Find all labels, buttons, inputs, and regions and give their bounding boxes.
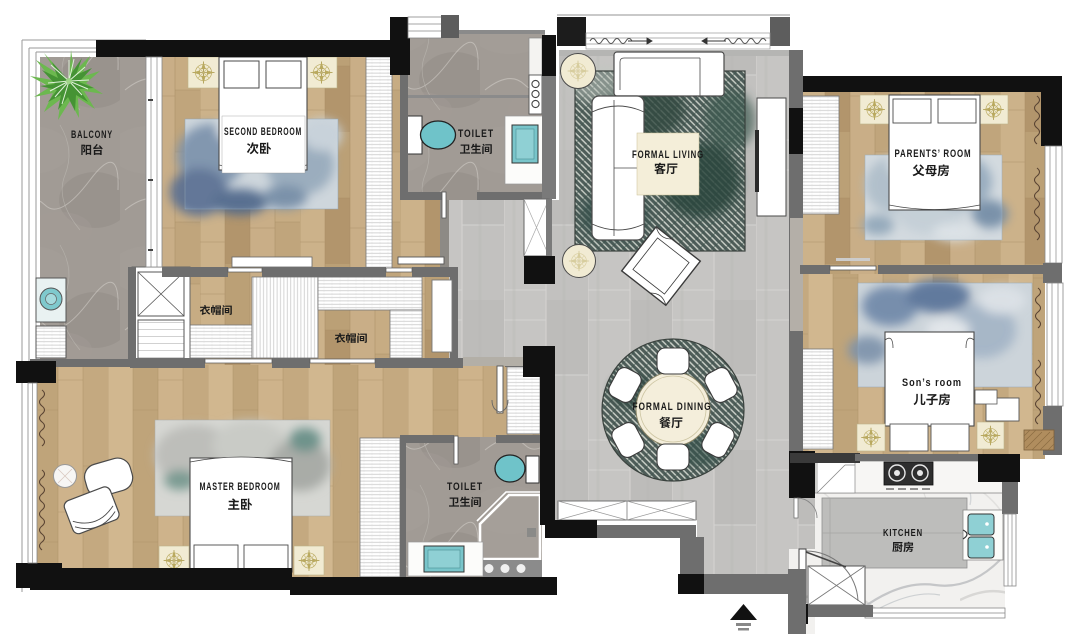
svg-text:BALCONY: BALCONY bbox=[71, 129, 113, 141]
svg-text:FORMAL DINING: FORMAL DINING bbox=[633, 401, 712, 413]
svg-text:儿子房: 儿子房 bbox=[913, 389, 951, 408]
svg-text:PARENTS’ ROOM: PARENTS’ ROOM bbox=[895, 148, 972, 160]
svg-text:Son’s room: Son’s room bbox=[902, 377, 962, 389]
svg-text:KITCHEN: KITCHEN bbox=[883, 527, 923, 539]
svg-text:衣帽间: 衣帽间 bbox=[200, 303, 233, 318]
svg-text:卫生间: 卫生间 bbox=[449, 494, 482, 510]
svg-text:厨房: 厨房 bbox=[892, 539, 914, 555]
svg-text:TOILET: TOILET bbox=[447, 481, 483, 493]
svg-text:客厅: 客厅 bbox=[654, 160, 678, 177]
svg-text:卫生间: 卫生间 bbox=[460, 141, 493, 157]
svg-text:次卧: 次卧 bbox=[246, 138, 272, 157]
svg-text:父母房: 父母房 bbox=[912, 160, 950, 179]
svg-text:衣帽间: 衣帽间 bbox=[335, 331, 368, 346]
svg-text:阳台: 阳台 bbox=[81, 142, 104, 158]
svg-text:主卧: 主卧 bbox=[227, 494, 253, 513]
svg-text:TOILET: TOILET bbox=[458, 128, 494, 140]
svg-text:餐厅: 餐厅 bbox=[659, 414, 683, 431]
svg-text:MASTER BEDROOM: MASTER BEDROOM bbox=[200, 481, 281, 493]
svg-text:SECOND BEDROOM: SECOND BEDROOM bbox=[224, 126, 302, 138]
